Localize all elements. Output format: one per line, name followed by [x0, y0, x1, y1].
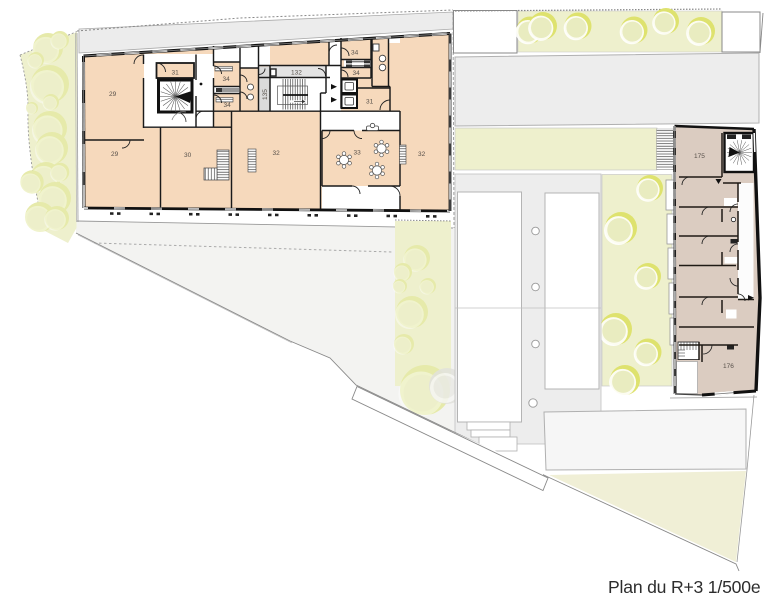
- svg-text:29: 29: [109, 91, 117, 98]
- svg-text:132: 132: [291, 70, 302, 77]
- svg-text:33: 33: [354, 150, 362, 157]
- svg-text:34: 34: [353, 70, 361, 77]
- svg-text:31: 31: [172, 70, 180, 77]
- svg-text:176: 176: [723, 363, 734, 370]
- svg-text:34: 34: [351, 50, 359, 57]
- svg-text:32: 32: [273, 150, 281, 157]
- svg-text:31: 31: [366, 99, 374, 106]
- svg-text:29: 29: [111, 151, 119, 158]
- svg-text:Plan du R+3 1/500e: Plan du R+3 1/500e: [608, 577, 760, 597]
- svg-text:32: 32: [418, 151, 426, 158]
- svg-text:34: 34: [224, 102, 232, 109]
- svg-text:30: 30: [184, 152, 192, 159]
- svg-text:175: 175: [694, 153, 705, 160]
- svg-text:135: 135: [262, 89, 269, 100]
- svg-text:34: 34: [223, 76, 231, 83]
